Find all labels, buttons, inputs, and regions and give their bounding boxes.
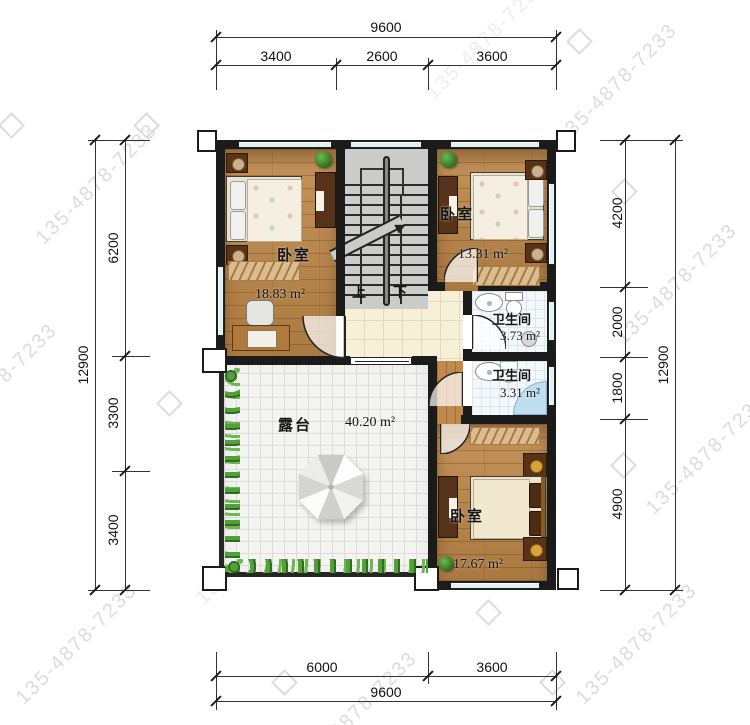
wall — [461, 415, 556, 424]
dim-top-seg: 3400 — [216, 49, 336, 63]
dim-left-seg: 3400 — [106, 495, 120, 565]
wall — [463, 352, 556, 361]
room-area-bedroom-ne: 13.31 m² — [458, 247, 508, 263]
extension-line — [112, 356, 150, 357]
dim-left-seg: 3300 — [106, 378, 120, 448]
door-arc — [302, 315, 346, 359]
room-area-terrace: 40.20 m² — [345, 415, 395, 431]
extension-line — [88, 140, 150, 141]
bed — [470, 172, 544, 240]
terrace-pillar — [202, 348, 227, 373]
watermark-text: 135-4878-7233 — [0, 319, 62, 450]
watermark-text: 135-4878-7233 — [572, 579, 703, 710]
dim-right-seg: 1800 — [610, 353, 624, 423]
dim-top-seg: 3600 — [428, 49, 556, 63]
room-label-terrace: 露台 — [278, 414, 312, 435]
plant-icon — [440, 151, 457, 168]
watermark-text: 135-4878-7233 — [612, 219, 743, 350]
room-label-bedroom-se: 卧室 — [450, 505, 484, 526]
dim-bottom-total: 9600 — [216, 685, 556, 699]
umbrella-icon — [296, 452, 366, 522]
dimension-line — [216, 37, 556, 38]
rug — [472, 266, 540, 286]
dim-left-seg: 6200 — [106, 213, 120, 283]
wall — [463, 291, 472, 315]
room-area-bedroom-se: 17.67 m² — [453, 557, 503, 573]
wall — [428, 282, 445, 291]
dim-right-seg: 4900 — [610, 469, 624, 539]
terrace-sliding-door — [350, 357, 412, 365]
room-label-bedroom-nw: 卧室 — [277, 244, 311, 265]
extension-line — [88, 590, 150, 591]
terrace-pillar — [202, 566, 227, 591]
dimension-line — [625, 140, 626, 590]
corner-pillar — [557, 568, 579, 590]
wall — [336, 149, 345, 316]
room-label-bedroom-ne: 卧室 — [440, 203, 474, 224]
window — [548, 183, 555, 265]
window — [450, 141, 540, 148]
watermark-diamond-icon — [0, 112, 25, 139]
window — [217, 266, 224, 336]
room-area-bath-lower: 3.31 m² — [500, 385, 540, 401]
wardrobe — [315, 172, 336, 228]
terrace-railing — [219, 365, 224, 577]
dim-right-total: 12900 — [656, 330, 670, 400]
dim-right-seg: 2000 — [610, 287, 624, 357]
dim-left-total: 12900 — [76, 330, 90, 400]
rug — [470, 427, 540, 445]
window — [350, 141, 422, 148]
extension-line — [556, 30, 557, 90]
chair — [246, 300, 274, 326]
window — [548, 301, 555, 341]
door-arc — [440, 424, 470, 454]
window — [450, 582, 540, 589]
nightstand — [525, 160, 547, 180]
window — [548, 366, 555, 406]
extension-line — [428, 652, 429, 684]
extension-line — [112, 471, 150, 472]
dim-top-total: 9600 — [216, 20, 556, 34]
room-area-bedroom-nw: 18.83 m² — [255, 287, 305, 303]
dimension-line — [95, 140, 96, 590]
dimension-line — [216, 701, 556, 702]
corner-pillar — [197, 130, 217, 152]
dim-top-seg: 2600 — [336, 49, 428, 63]
room-area-bath-upper: 3.73 m² — [500, 328, 540, 344]
stair-landing — [360, 168, 404, 196]
floor-plan-canvas: 135-4878-7233 135-4878-7233 135-4878-723… — [0, 0, 750, 725]
wall — [428, 149, 437, 282]
window — [238, 141, 332, 148]
dimension-line — [125, 140, 126, 590]
stair-down-label: 下 — [393, 282, 407, 302]
door-arc — [429, 372, 463, 406]
dimension-line — [675, 140, 676, 590]
watermark-text: 135-4878-7233 — [642, 389, 750, 520]
plant-icon — [439, 556, 454, 571]
terrace-plants — [228, 559, 428, 573]
dim-bottom-seg: 3600 — [428, 660, 556, 674]
watermark-diamond-icon — [475, 599, 502, 626]
extension-line — [600, 590, 683, 591]
dimension-line — [216, 65, 556, 66]
extension-line — [216, 30, 217, 90]
nightstand — [226, 153, 248, 173]
extension-line — [600, 140, 683, 141]
corner-pillar — [556, 130, 576, 152]
room-label-bath-upper: 卫生间 — [492, 309, 531, 328]
terrace-plants — [225, 368, 240, 572]
nightstand — [523, 453, 547, 477]
desk — [232, 325, 290, 351]
room-label-bath-lower: 卫生间 — [492, 365, 531, 384]
plant-icon — [315, 151, 332, 168]
nightstand — [523, 537, 547, 561]
watermark-diamond-icon — [566, 28, 593, 55]
dim-bottom-seg: 6000 — [216, 660, 428, 674]
stair-up-label: 上 — [352, 282, 366, 302]
dimension-line — [216, 676, 556, 677]
watermark-text: 135-4878-7233 — [12, 579, 143, 710]
dim-right-seg: 4200 — [610, 178, 624, 248]
bed — [226, 176, 302, 242]
nightstand — [525, 243, 547, 263]
watermark-diamond-icon — [156, 390, 183, 417]
